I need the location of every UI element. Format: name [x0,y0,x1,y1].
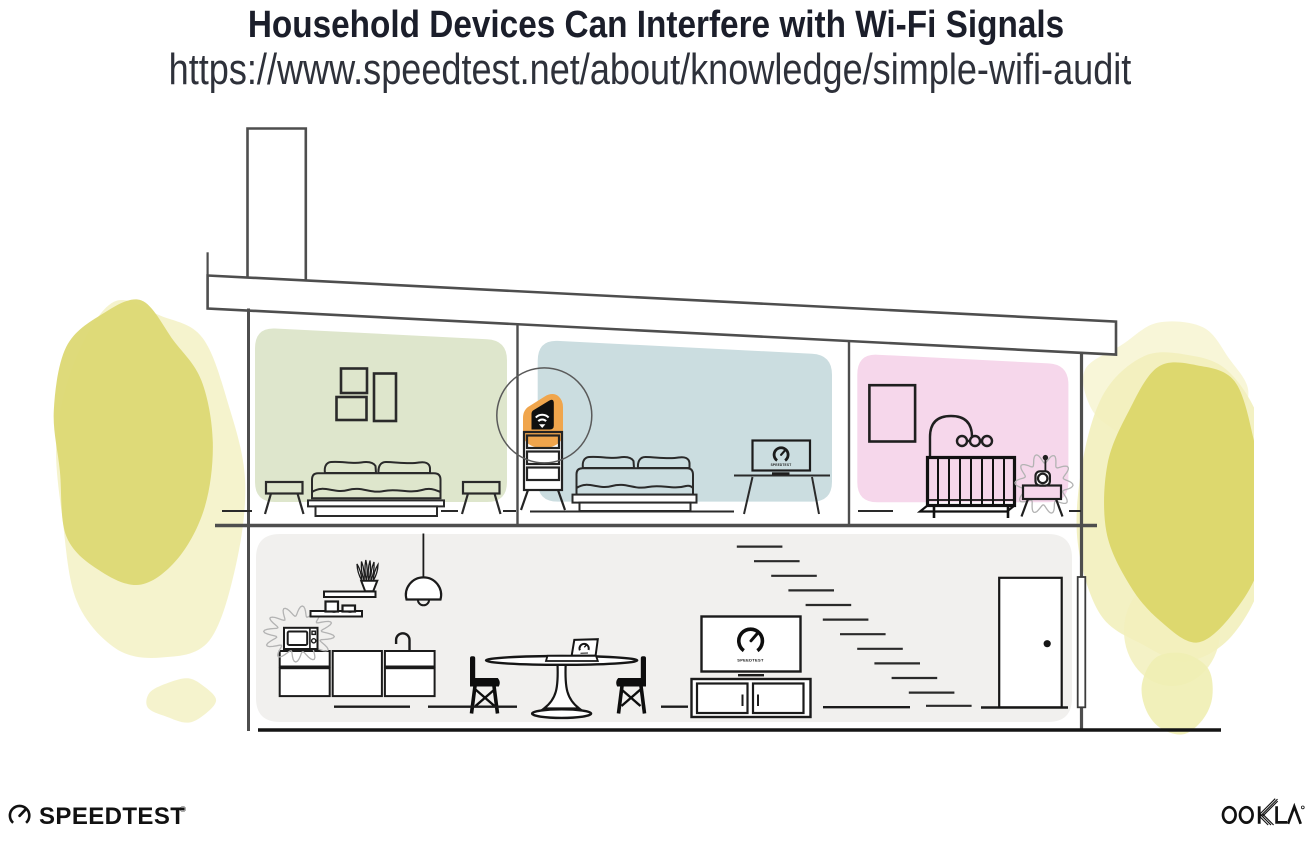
svg-text:SPEEDTEST: SPEEDTEST [39,803,185,830]
svg-text:SPEEDTEST: SPEEDTEST [771,463,792,467]
svg-text:SPEEDTEST: SPEEDTEST [737,658,764,663]
svg-text:®: ® [180,805,186,814]
